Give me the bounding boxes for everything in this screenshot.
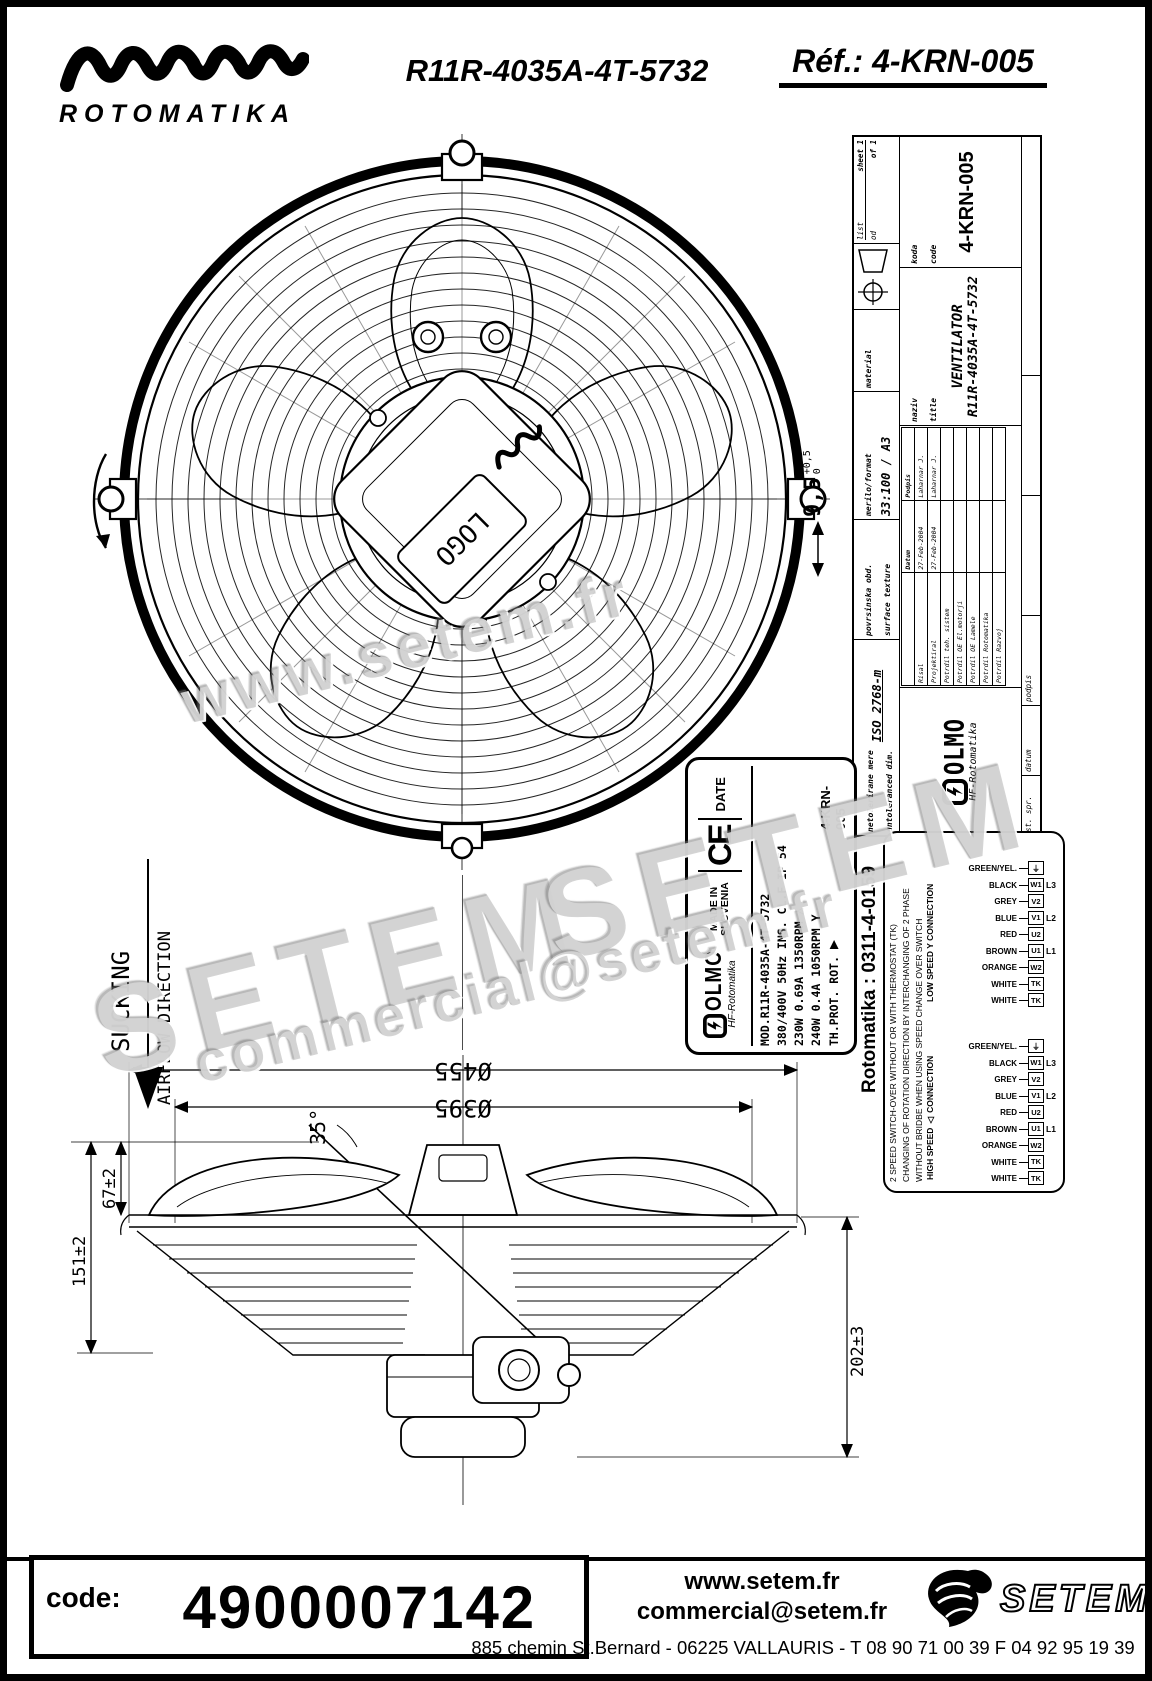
sig-name: Laharnar J. [915, 428, 928, 501]
title-block: netolerirane mere untoleranced dim. ISO … [852, 135, 1042, 837]
label-code: 4-KRN-005 [818, 766, 848, 830]
low-speed-label: LOW SPEED Y CONNECTION [925, 837, 935, 1002]
drawing-sheet: ROTOMATIKA R11R-4035A-4T-5732 Réf.: 4-KR… [0, 0, 1152, 1681]
scale-label: merilo/format [864, 453, 873, 516]
reference-number: Réf.: 4-KRN-005 [779, 43, 1047, 88]
line-label: L3 [1044, 1058, 1061, 1068]
signature-table: Datum Podpis Risal 27-Feb-2004 Laharnar … [901, 427, 1006, 686]
sig-role: Risal [915, 572, 928, 685]
sig-date: 27-Feb-2004 [928, 500, 941, 572]
podpis-label: podpis [1022, 615, 1040, 705]
title-label-sl: naziv [910, 398, 919, 422]
wiring-diagram: 2 SPEED SWITCH-OVER WITHOUT OR WITH THER… [883, 831, 1065, 1193]
line-label: L1 [1044, 946, 1061, 956]
sig-date [980, 500, 993, 572]
rotomatika-wave-icon [59, 33, 309, 95]
motor-spec-label: OLMO HF-Rotomatika MADE IN SLOVENIA CE D… [685, 757, 857, 1055]
sig-role: Potrdil teh. sistem [941, 572, 954, 685]
rim-thickness-dimension: 9,5 +0,5 0 [801, 417, 835, 517]
sucking-label: SUCKING [107, 867, 135, 1052]
sig-role: Potrdil OE Lamele [967, 572, 980, 685]
wiring-note-1: 2 SPEED SWITCH-OVER WITHOUT OR WITH THER… [887, 837, 899, 1182]
olmo-brand-text: OLMO [701, 950, 727, 1011]
wire-color: BLUE [940, 1092, 1017, 1101]
wire-color: BROWN [940, 947, 1017, 956]
terminal-cell: W1 [1028, 1056, 1044, 1070]
dim-height-202: 202±3 [848, 1326, 867, 1377]
code-label-sl: koda [910, 245, 919, 264]
sheet-label-en: sheet 1 [856, 140, 865, 172]
untoleranced-label-en: untoleranced dim. [885, 750, 894, 832]
sheet-label-sl: list [856, 222, 865, 240]
code-label: code: [46, 1582, 121, 1614]
spec-speed-low: 240W 0.4A 1050RPM Y [808, 830, 825, 1046]
dim-outer-diameter: Ø455 [434, 1057, 492, 1085]
sig-date [954, 500, 967, 572]
olmo-logo-icon [942, 779, 968, 805]
wire-color: WHITE [940, 980, 1017, 989]
wire-color: BROWN [940, 1125, 1017, 1134]
scale-value: 33:100 / A3 [879, 437, 893, 516]
sig-name [941, 428, 954, 501]
terminal-cell: TK [1028, 993, 1044, 1007]
footer-address: 885 chemin St.Bernard - 06225 VALLAURIS … [457, 1637, 1149, 1659]
sig-role: Potrdil Rotomatika [980, 572, 993, 685]
terminal-cell: W2 [1028, 960, 1044, 974]
dim-tol-lower: 0 [813, 450, 823, 474]
spec-voltage: 380/400V 50Hz INS. CL.F IP 54 [774, 830, 791, 1046]
sig-date [967, 500, 980, 572]
sig-role: Potrdil OE El.motorji [954, 572, 967, 685]
high-speed-connection: HIGH SPEED △ CONNECTION GREEN/YEL.⏚ BLAC… [925, 1015, 1061, 1187]
dim-height-151: 151±2 [70, 1236, 90, 1287]
olmo-brand-text: OLMO [940, 718, 970, 775]
country-text: SLOVENIA [719, 882, 731, 936]
drawing-model-title: R11R-4035A-4T-5732 [347, 53, 767, 89]
terminal-cell: TK [1028, 1171, 1044, 1185]
dim-value: 9,5 [801, 477, 826, 517]
terminal-cell: V1 [1028, 911, 1044, 925]
untoleranced-label-sl: netolerirane mere [866, 750, 875, 832]
terminal-cell: V1 [1028, 1089, 1044, 1103]
dim-blade-angle: 35° [306, 1109, 330, 1145]
terminal-cell: TK [1028, 977, 1044, 991]
terminal-cell: ⏚ [1028, 1039, 1044, 1053]
sig-date [993, 500, 1006, 572]
wire-color: GREEN/YEL. [940, 864, 1017, 873]
line-label: L2 [1044, 913, 1061, 923]
surface-label-en: surface texture [883, 564, 892, 636]
sig-role: Projektiral [928, 572, 941, 685]
sig-date [941, 500, 954, 572]
sig-name [967, 428, 980, 501]
wire-color: ORANGE [940, 963, 1017, 972]
setem-swirl-icon [928, 1570, 992, 1627]
wire-color: BLUE [940, 914, 1017, 923]
wire-color: GREY [940, 1075, 1017, 1084]
drawing-code: 4-KRN-005 [956, 140, 979, 264]
wire-color: RED [940, 930, 1017, 939]
rotomatika-logo: ROTOMATIKA [59, 33, 329, 129]
setem-logo: SETEM [922, 1565, 1147, 1633]
terminal-cell: W1 [1028, 878, 1044, 892]
stspr-label: st. spr. [1022, 775, 1040, 835]
code-value: 4900007142 [135, 1573, 584, 1642]
low-speed-connection: LOW SPEED Y CONNECTION GREEN/YEL.⏚ BLACK… [925, 837, 1061, 1009]
terminal-cell: W2 [1028, 1138, 1044, 1152]
ce-mark: CE [702, 826, 739, 866]
dim-bolt-circle: Ø395 [434, 1094, 492, 1122]
drawing-title-line2: R11R-4035A-4T-5732 [966, 271, 981, 422]
datum-col-header: Datum [902, 500, 915, 572]
sig-name [980, 428, 993, 501]
spec-model: MOD.R11R-4035A-4T-5732 [757, 830, 774, 1046]
projection-symbol-icon [856, 248, 890, 306]
motor-body [387, 1337, 580, 1457]
brand-name: ROTOMATIKA [59, 100, 329, 129]
terminal-cell: TK [1028, 1155, 1044, 1169]
wire-color: GREEN/YEL. [940, 1042, 1017, 1051]
datum-label: datum [1022, 705, 1040, 775]
footer-email: commercial@setem.fr [597, 1597, 927, 1627]
of-label-en: of 1 [869, 140, 878, 158]
wire-color: BLACK [940, 881, 1017, 890]
sig-name [993, 428, 1006, 501]
date-label: DATE [713, 777, 728, 811]
setem-logo-text: SETEM [1000, 1578, 1147, 1620]
sig-name [954, 428, 967, 501]
spec-thermal: TH.PROT. ROT. [827, 956, 841, 1046]
wire-color: WHITE [940, 1158, 1017, 1167]
olmo-logo-icon [703, 1014, 727, 1038]
rim-thickness-arrows [803, 519, 843, 589]
iso-standard: ISO 2768-m [870, 670, 884, 742]
line-label: L1 [1044, 1124, 1061, 1134]
footer-site: www.setem.fr [597, 1567, 927, 1597]
sig-name: Laharnar J. [928, 428, 941, 501]
wire-color: RED [940, 1108, 1017, 1117]
terminal-cell: V2 [1028, 894, 1044, 908]
terminal-cell: U1 [1028, 1122, 1044, 1136]
surface-label-sl: povrsinska obd. [864, 564, 873, 636]
line-label: L3 [1044, 880, 1061, 890]
podpis-col-header: Podpis [902, 428, 915, 501]
terminal-cell: U2 [1028, 927, 1044, 941]
sig-role: Potrdil Razvoj [993, 572, 1006, 685]
terminal-cell: ⏚ [1028, 861, 1044, 875]
spec-speed-high: 230W 0.69A 1350RPM △ [791, 830, 808, 1046]
wire-color: GREY [940, 897, 1017, 906]
rotation-arrow-glyph: ▶ [824, 940, 842, 949]
fan-side-view: Ø455 Ø395 35° [57, 1037, 867, 1517]
high-speed-label: HIGH SPEED △ CONNECTION [925, 1015, 935, 1180]
of-label-sl: od [869, 231, 878, 240]
sig-date: 27-Feb-2004 [915, 500, 928, 572]
title-label-en: title [929, 398, 938, 422]
wiring-note-3: WITHOUT BRIDBE WHEN USING SPEED CHANGE O… [913, 837, 925, 1182]
wire-color: WHITE [940, 1174, 1017, 1183]
code-label-en: code [929, 245, 938, 264]
terminal-cell: U2 [1028, 1105, 1044, 1119]
dim-height-67: 67±2 [100, 1168, 120, 1209]
wire-color: WHITE [940, 996, 1017, 1005]
terminal-cell: U1 [1028, 944, 1044, 958]
material-label: material [864, 349, 873, 388]
wire-color: ORANGE [940, 1141, 1017, 1150]
terminal-cell: V2 [1028, 1072, 1044, 1086]
center-line [462, 875, 463, 1050]
line-label: L2 [1044, 1091, 1061, 1101]
drawing-title-line1: VENTILATOR [950, 271, 966, 422]
wire-color: BLACK [940, 1059, 1017, 1068]
side-blades [149, 1145, 777, 1216]
wiring-note-2: CHANGING OF ROTATION DIRECTION BY INTERC… [900, 837, 912, 1182]
